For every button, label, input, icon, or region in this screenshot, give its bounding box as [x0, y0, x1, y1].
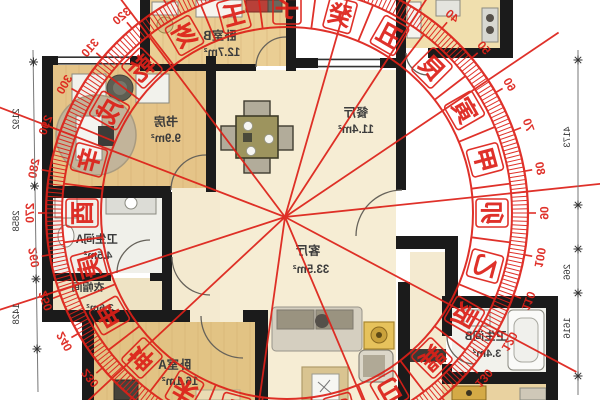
svg-text:266: 266 — [562, 264, 573, 280]
svg-text:4173: 4173 — [562, 126, 573, 147]
svg-text:1428: 1428 — [11, 303, 22, 324]
svg-text:2858: 2858 — [11, 210, 22, 231]
svg-text:3.4m²: 3.4m² — [472, 348, 501, 360]
svg-text:80: 80 — [532, 160, 548, 176]
svg-text:2192: 2192 — [11, 108, 22, 129]
svg-text:1616: 1616 — [562, 317, 573, 338]
svg-text:33.5m²: 33.5m² — [293, 264, 330, 276]
svg-text:90: 90 — [537, 206, 551, 220]
svg-text:12.7m²: 12.7m² — [204, 47, 241, 59]
svg-text:9.9m²: 9.9m² — [151, 133, 181, 145]
